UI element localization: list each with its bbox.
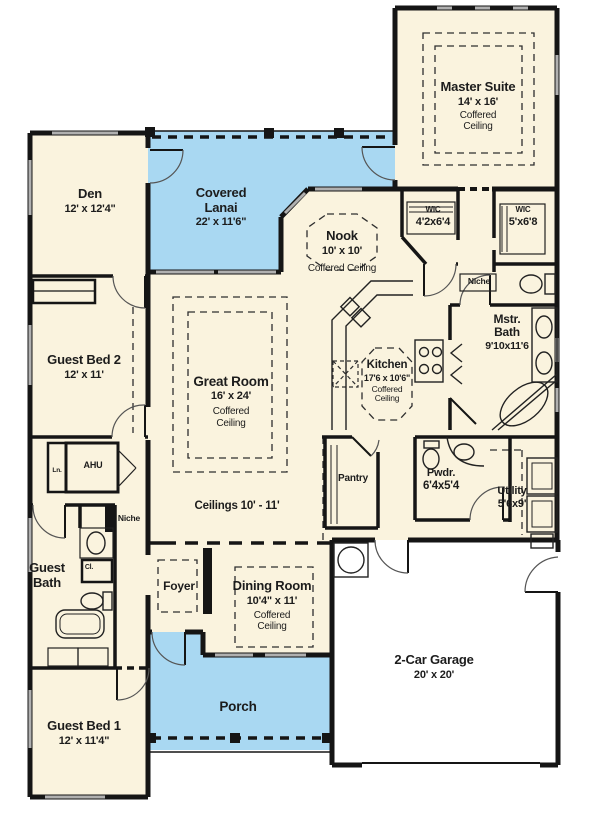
utility-dims: 5'6x9' xyxy=(482,498,542,510)
room-label-dining-room: Dining Room 10'4" x 11' Coffered Ceiling xyxy=(222,579,322,632)
den-name: Den xyxy=(35,187,145,202)
room-label-garage: 2-Car Garage 20' x 20' xyxy=(374,653,494,681)
pwdr-name: Pwdr. xyxy=(406,467,476,479)
utility-name: Utility xyxy=(482,485,542,497)
dining-room-name: Dining Room xyxy=(222,579,322,594)
label-foyer: Foyer xyxy=(163,580,195,593)
room-label-master-suite: Master Suite 14' x 16' Coffered Ceiling xyxy=(418,80,538,132)
label-linen: Ln. xyxy=(52,467,61,474)
wic1-name: WIC xyxy=(398,206,468,215)
room-label-guest-bed-2: Guest Bed 2 12' x 11' xyxy=(29,353,139,381)
master-suite-note: Coffered Ceiling xyxy=(448,110,508,132)
label-ahu: AHU xyxy=(84,460,103,470)
wic1-dims: 4'2x6'4 xyxy=(398,216,468,228)
porch-post-icon xyxy=(322,733,332,743)
mstr-bath-name: Mstr. Bath xyxy=(481,313,533,340)
guest-bed-1-name: Guest Bed 1 xyxy=(29,719,139,734)
dining-room-note: Coffered Ceiling xyxy=(247,610,297,632)
label-porch: Porch xyxy=(219,699,256,714)
room-label-mstr-bath: Mstr. Bath 9'10x11'6 xyxy=(481,313,533,353)
label-cl: Cl. xyxy=(85,564,93,572)
floor-plan: Master Suite 14' x 16' Coffered Ceiling … xyxy=(0,0,600,816)
wic2-dims: 5'x6'8 xyxy=(488,216,558,228)
room-label-wic1: WIC 4'2x6'4 xyxy=(398,206,468,228)
label-pantry: Pantry xyxy=(338,473,368,484)
room-label-wic2: WIC 5'x6'8 xyxy=(488,206,558,228)
room-label-den: Den 12' x 12'4" xyxy=(35,187,145,215)
room-label-great-room: Great Room 16' x 24' Coffered Ceiling xyxy=(176,374,286,429)
dining-room-dims: 10'4" x 11' xyxy=(222,595,322,607)
mstr-bath-dims: 9'10x11'6 xyxy=(481,341,533,353)
guest-bed-2-dims: 12' x 11' xyxy=(29,369,139,381)
porch-post-icon xyxy=(230,733,240,743)
master-suite-dims: 14' x 16' xyxy=(418,96,538,108)
kitchen-name: Kitchen xyxy=(359,359,415,372)
lanai-post-icon xyxy=(334,128,344,138)
wic2-name: WIC xyxy=(488,206,558,215)
garage-name: 2-Car Garage xyxy=(374,653,494,668)
guest-bath-name: Guest Bath xyxy=(23,561,71,590)
room-label-pwdr: Pwdr. 6'4x5'4 xyxy=(406,467,476,493)
garage-dims: 20' x 20' xyxy=(374,669,494,681)
label-niche-master: Niche xyxy=(468,277,490,287)
lanai-post-icon xyxy=(145,127,155,137)
water-heater-icon xyxy=(338,547,364,573)
den-dims: 12' x 12'4" xyxy=(35,203,145,215)
room-label-guest-bed-1: Guest Bed 1 12' x 11'4" xyxy=(29,719,139,747)
kitchen-dims: 17'6 x 10'6" xyxy=(359,373,415,383)
label-niche-hall: Niche xyxy=(118,514,140,524)
room-label-kitchen: Kitchen 17'6 x 10'6" Coffered Ceiling xyxy=(359,359,415,404)
great-room-note: Coffered Ceiling xyxy=(202,406,260,428)
guest-bed-2-name: Guest Bed 2 xyxy=(29,353,139,368)
room-label-covered-lanai: Covered Lanai 22' x 11'6" xyxy=(190,186,252,228)
label-ceilings-note: Ceilings 10' - 11' xyxy=(195,500,280,513)
foyer-dining-pillar xyxy=(203,548,212,614)
room-label-nook: Nook 10' x 10' Coffered Ceiling xyxy=(292,229,392,274)
room-label-utility: Utility 5'6x9' xyxy=(482,485,542,511)
pwdr-dims: 6'4x5'4 xyxy=(406,480,476,493)
master-suite-name: Master Suite xyxy=(418,80,538,95)
kitchen-note: Coffered Ceiling xyxy=(365,385,409,404)
lanai-post-icon xyxy=(264,128,274,138)
covered-lanai-name: Covered Lanai xyxy=(190,186,252,215)
great-room-dims: 16' x 24' xyxy=(176,390,286,402)
great-room-name: Great Room xyxy=(176,374,286,389)
nook-dims: 10' x 10' xyxy=(292,245,392,257)
nook-name: Nook xyxy=(292,229,392,244)
porch-post-icon xyxy=(146,733,156,743)
room-label-guest-bath: Guest Bath xyxy=(23,561,71,590)
guest-bed-1-dims: 12' x 11'4" xyxy=(29,735,139,747)
covered-lanai-dims: 22' x 11'6" xyxy=(190,216,252,228)
nook-note: Coffered Ceiling xyxy=(292,263,392,274)
